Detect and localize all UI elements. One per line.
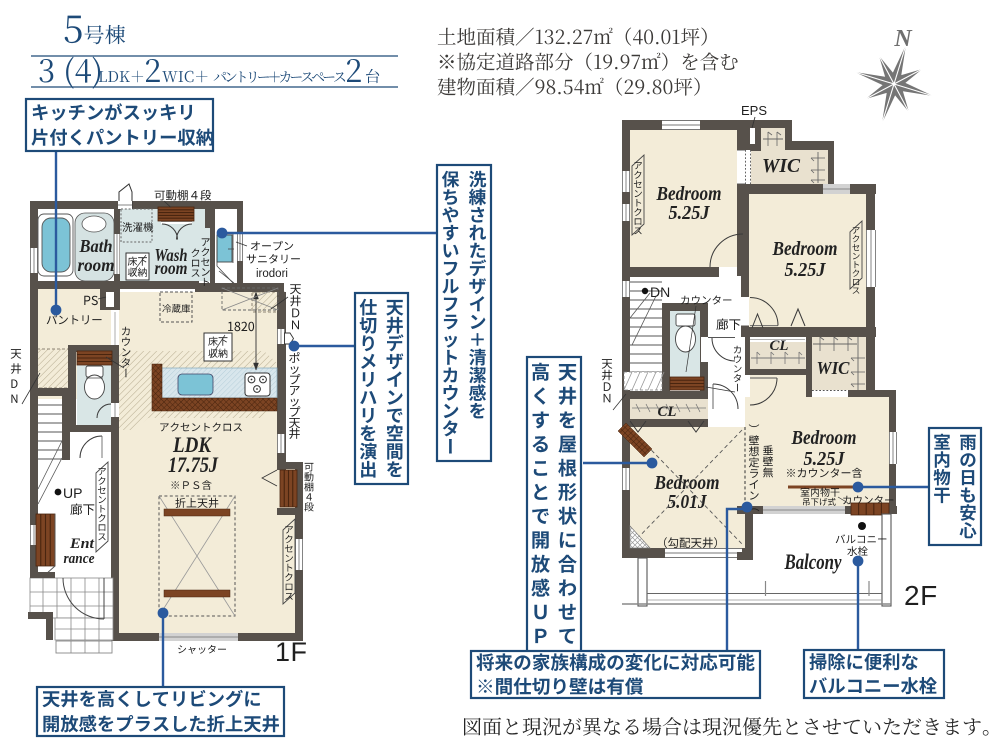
svg-text:UP: UP (63, 485, 82, 501)
svg-text:Bath: Bath (79, 236, 113, 256)
svg-text:Bedroom: Bedroom (656, 184, 722, 205)
svg-text:Balcony: Balcony (784, 549, 842, 574)
svg-text:Bedroom: Bedroom (654, 473, 720, 494)
svg-text:1F: 1F (275, 637, 308, 667)
svg-text:rance: rance (64, 551, 96, 567)
svg-text:room: room (155, 258, 188, 278)
svg-text:EPS: EPS (741, 103, 767, 118)
svg-text:WIC: WIC (817, 358, 851, 378)
svg-text:Bedroom: Bedroom (772, 239, 838, 260)
svg-text:N: N (893, 26, 913, 52)
svg-text:irodori: irodori (256, 268, 288, 280)
svg-text:CL: CL (658, 404, 677, 420)
svg-text:room: room (78, 255, 115, 275)
svg-text:DN: DN (650, 284, 670, 300)
svg-text:17.75J: 17.75J (168, 452, 219, 477)
svg-text:Ent: Ent (69, 536, 95, 552)
svg-text:5.25J: 5.25J (804, 449, 846, 470)
svg-text:Bedroom: Bedroom (791, 428, 857, 449)
svg-text:2F: 2F (904, 580, 938, 611)
svg-text:5.25J: 5.25J (669, 203, 711, 224)
svg-text:5.25J: 5.25J (785, 260, 827, 281)
svg-text:CL: CL (770, 338, 789, 354)
svg-text:WIC: WIC (762, 156, 801, 177)
